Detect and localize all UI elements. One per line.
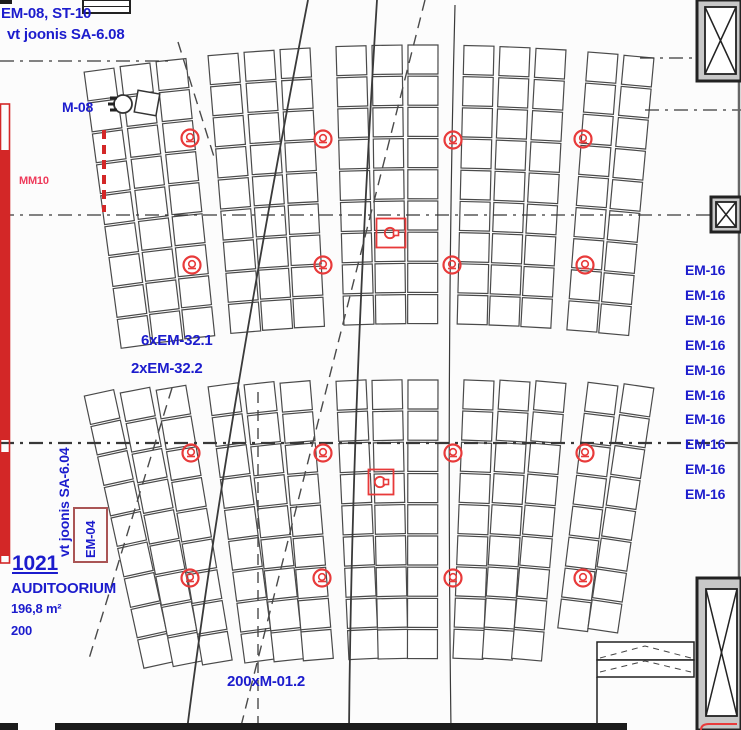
label-em16-5: EM-16 (685, 388, 725, 402)
label-m012: 200xM-01.2 (227, 674, 305, 689)
label-vt-joonis-sa608: vt joonis SA-6.08 (7, 27, 124, 42)
label-em16-6: EM-16 (685, 412, 725, 426)
label-em32-1: 6xEM-32.1 (141, 333, 213, 348)
label-m08: M-08 (62, 100, 93, 114)
detector-symbol (444, 257, 461, 274)
label-em16-3: EM-16 (685, 338, 725, 352)
label-mm10: MM10 (19, 176, 49, 187)
room-name: AUDITOORIUM (11, 581, 116, 596)
room-number: 1021 (12, 553, 58, 574)
detector-symbol (315, 445, 332, 462)
label-em32-2: 2xEM-32.2 (131, 361, 203, 376)
label-em04: EM-04 (84, 521, 97, 558)
label-em16-7: EM-16 (685, 437, 725, 451)
detector-symbol (445, 445, 462, 462)
column-shaft (697, 0, 741, 81)
column-shaft (711, 197, 741, 232)
floor-plan: 1021 AUDITOORIUM 196,8 m² 200 EM-08, ST-… (0, 0, 741, 730)
label-em08-st10: EM-08, ST-10 (1, 6, 91, 21)
door-assembly (597, 642, 694, 724)
label-vt-joonis-sa604: vt joonis SA-6.04 (57, 448, 71, 557)
detector-symbol (315, 131, 332, 148)
room-capacity: 200 (11, 624, 32, 637)
label-em16-1: EM-16 (685, 288, 725, 302)
label-em16-9: EM-16 (685, 487, 725, 501)
label-em16-4: EM-16 (685, 363, 725, 377)
label-em16-2: EM-16 (685, 313, 725, 327)
label-em16-8: EM-16 (685, 462, 725, 476)
detector-symbol (315, 257, 332, 274)
room-area: 196,8 m² (11, 602, 61, 615)
floorplan-canvas (0, 0, 741, 730)
label-em16-0: EM-16 (685, 263, 725, 277)
detector-symbol (445, 132, 462, 149)
red-riser-bar (1, 104, 10, 563)
column-shaft (697, 578, 741, 730)
